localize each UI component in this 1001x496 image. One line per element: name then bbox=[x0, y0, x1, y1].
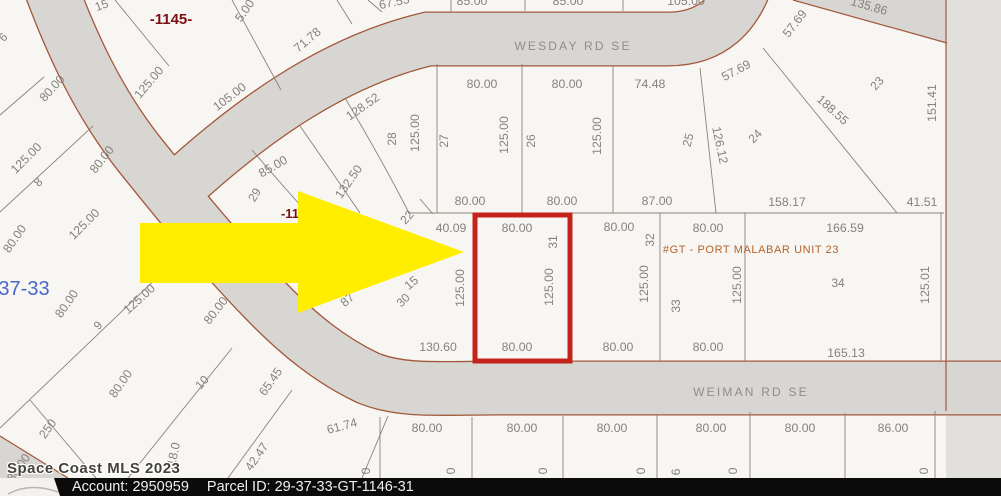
dimension-label: 125.00 bbox=[408, 114, 422, 152]
dimension-label: 80.00 bbox=[552, 77, 583, 91]
dimension-label: 80.00 bbox=[502, 340, 533, 354]
dimension-label: 80.00 bbox=[785, 421, 816, 435]
parcel-id-value: 29-37-33-GT-1146-31 bbox=[275, 479, 414, 495]
lot-number-label: 33 bbox=[669, 299, 683, 313]
dimension-label: 80.00 bbox=[693, 340, 724, 354]
street-name-label: WESDAY RD SE bbox=[514, 39, 631, 53]
dimension-label: 41.51 bbox=[907, 195, 938, 209]
dimension-label: 125.00 bbox=[542, 268, 556, 306]
dimension-label: 105.00 bbox=[667, 0, 705, 8]
dimension-label: 85.00 bbox=[553, 0, 584, 8]
dimension-label: 6 bbox=[669, 468, 683, 475]
dimension-label: 0 bbox=[726, 467, 740, 474]
dimension-label: 125.00 bbox=[730, 266, 744, 304]
dimension-label: 125.00 bbox=[453, 269, 467, 307]
annotation-label: -1145- bbox=[150, 11, 193, 28]
parcel-id-label: Parcel ID: bbox=[207, 479, 271, 495]
dimension-label: 86.00 bbox=[878, 421, 909, 435]
dimension-label: 80.00 bbox=[547, 194, 578, 208]
dimension-label: 125.00 bbox=[637, 265, 651, 303]
street-name-label: WEIMAN RD SE bbox=[693, 385, 809, 399]
dimension-label: 80.00 bbox=[603, 340, 634, 354]
dimension-label: 0 bbox=[444, 467, 458, 474]
lot-number-label: 34 bbox=[831, 276, 845, 290]
dimension-label: 166.59 bbox=[826, 221, 864, 235]
annotation-label: #GT - PORT MALABAR UNIT 23 bbox=[663, 244, 839, 256]
dimension-label: 80.00 bbox=[467, 77, 498, 91]
dimension-label: 125.01 bbox=[918, 266, 932, 304]
dimension-label: 80.00 bbox=[604, 220, 635, 234]
dimension-label: 80.00 bbox=[693, 221, 724, 235]
dimension-label: 125.00 bbox=[590, 117, 604, 155]
mls-logo-fragment bbox=[0, 478, 66, 496]
dimension-label: 80.00 bbox=[455, 194, 486, 208]
dimension-label: 40.09 bbox=[436, 221, 467, 235]
dimension-label: 74.48 bbox=[635, 77, 666, 91]
lot-number-label: 31 bbox=[546, 235, 560, 249]
dimension-label: 158.17 bbox=[768, 195, 806, 209]
dimension-label: 80.00 bbox=[507, 421, 538, 435]
footer-bar: Account: 2950959Parcel ID: 29-37-33-GT-1… bbox=[0, 478, 1001, 496]
account-label: Account: bbox=[72, 479, 128, 495]
dimension-label: 87.00 bbox=[642, 194, 673, 208]
dimension-label: 125.00 bbox=[497, 116, 511, 154]
dimension-label: 0 bbox=[634, 467, 648, 474]
lot-number-label: 32 bbox=[643, 233, 657, 247]
dimension-label: 151.41 bbox=[925, 84, 939, 122]
dimension-label: 0 bbox=[536, 467, 550, 474]
plat-map: 5.00125.00105.0071.7867.5385.0085.00105.… bbox=[0, 0, 1001, 478]
account-value: 2950959 bbox=[132, 479, 188, 495]
annotation-label: 37-33 bbox=[0, 278, 50, 300]
dimension-label: 0 bbox=[359, 467, 373, 474]
lot-number-label: 27 bbox=[437, 134, 451, 148]
dimension-label: 85.00 bbox=[457, 0, 488, 8]
dimension-label: 165.13 bbox=[827, 346, 865, 360]
lot-number-label: 28 bbox=[385, 132, 399, 146]
annotation-label: -11 bbox=[281, 206, 299, 221]
dimension-label: 80.00 bbox=[597, 421, 628, 435]
lot-number-label: 26 bbox=[524, 134, 538, 148]
dimension-label: 80.00 bbox=[696, 421, 727, 435]
dimension-label: 130.60 bbox=[419, 340, 457, 354]
dimension-label: 80.00 bbox=[502, 221, 533, 235]
dimension-label: 0 bbox=[917, 467, 931, 474]
mls-watermark: Space Coast MLS 2023 bbox=[7, 460, 180, 477]
footer-text: Account: 2950959Parcel ID: 29-37-33-GT-1… bbox=[72, 479, 414, 495]
dimension-label: 80.00 bbox=[412, 421, 443, 435]
plat-map-canvas: 5.00125.00105.0071.7867.5385.0085.00105.… bbox=[0, 0, 1001, 478]
